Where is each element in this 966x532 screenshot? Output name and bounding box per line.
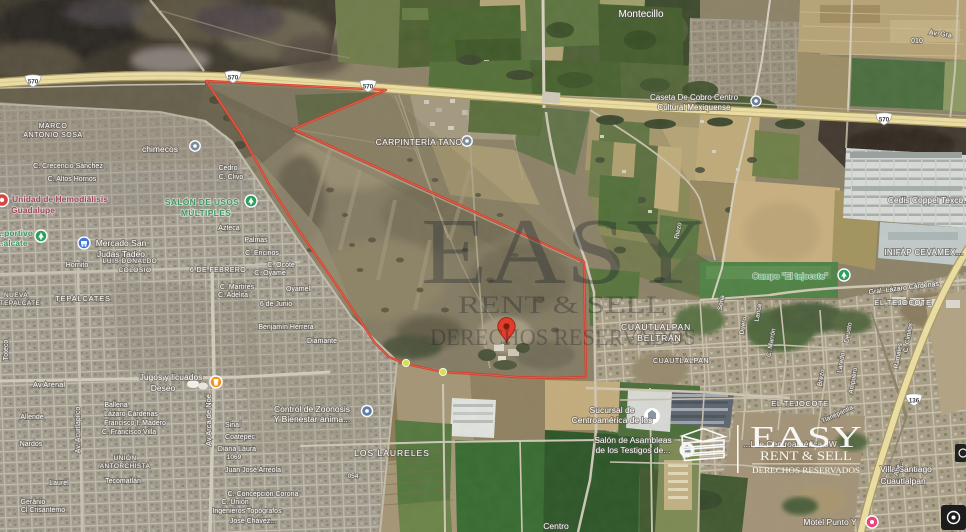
svg-text:Av. Acuitlapilco: Av. Acuitlapilco (75, 407, 82, 454)
svg-text:Centroamérica de los: Centroamérica de los (572, 415, 653, 425)
svg-text:EL TEJOCOTE: EL TEJOCOTE (874, 298, 931, 307)
svg-text:C. Clivo: C. Clivo (219, 174, 244, 181)
svg-text:570: 570 (28, 78, 39, 85)
svg-text:chimecos: chimecos (142, 144, 178, 154)
svg-text:ANTONIO SOSA: ANTONIO SOSA (23, 132, 82, 139)
svg-text:- BELTRÁN: - BELTRÁN (631, 333, 682, 343)
svg-text:Judas Tadeo: Judas Tadeo (97, 249, 145, 259)
svg-text:NUEVA: NUEVA (4, 292, 28, 299)
svg-text:Juan José Arreola: Juan José Arreola (225, 467, 281, 474)
svg-text:C. Unión: C. Unión (221, 499, 248, 506)
svg-text:Montecillo: Montecillo (618, 9, 663, 20)
svg-text:MÚLTIPLES: MÚLTIPLES (181, 207, 231, 218)
svg-text:Guadalupe: Guadalupe (11, 205, 55, 215)
svg-text:Nardos: Nardos (20, 441, 43, 448)
svg-text:Control de Zoonosis: Control de Zoonosis (274, 404, 350, 414)
svg-text:INIFAP CEVAMEX...: INIFAP CEVAMEX... (884, 248, 963, 257)
svg-text:C. Francisco Villa: C. Francisco Villa (102, 429, 156, 436)
svg-text:Caseta De Cobro Centro: Caseta De Cobro Centro (650, 93, 739, 102)
svg-text:C. Ocote: C. Ocote (267, 262, 295, 269)
svg-text:Sinaí: Sinaí (225, 422, 241, 429)
svg-text:Salón de Asambleas: Salón de Asambleas (594, 435, 672, 445)
svg-text:ANTORCHISTA: ANTORCHISTA (100, 463, 151, 470)
svg-text:C. Oyame: C. Oyame (254, 270, 286, 277)
svg-text:Hornito: Hornito (66, 262, 89, 269)
svg-text:MARCO: MARCO (39, 123, 68, 130)
svg-text:EASY: EASY (421, 200, 705, 304)
svg-text:CARPINTERÍA TANO: CARPINTERÍA TANO (376, 137, 463, 147)
svg-text:Toteco: Toteco (3, 340, 10, 361)
svg-text:Francisco I. Madero: Francisco I. Madero (104, 420, 166, 427)
svg-text:Diamante: Diamante (307, 338, 337, 345)
svg-text:CUAUTLALPAN: CUAUTLALPAN (653, 358, 709, 365)
svg-text:136: 136 (909, 397, 920, 404)
svg-text:Oyamel: Oyamel (286, 286, 311, 293)
svg-text:C. Crecencio Sánchez: C. Crecencio Sánchez (33, 163, 103, 170)
svg-text:C. Altos Hornos: C. Altos Hornos (48, 176, 97, 183)
svg-text:EL TEJOCOTE: EL TEJOCOTE (771, 399, 828, 408)
svg-text:Y Bienestar anima...: Y Bienestar anima... (274, 414, 350, 424)
svg-text:C. Adelita: C. Adelita (218, 292, 248, 299)
svg-text:CUAUTLALPAN: CUAUTLALPAN (621, 322, 691, 332)
svg-text:Av Arenal: Av Arenal (33, 380, 65, 389)
svg-text:DERECHOS RESERVADOS: DERECHOS RESERVADOS (752, 466, 860, 475)
svg-text:RENT & SELL: RENT & SELL (458, 292, 666, 319)
svg-text:Cedro: Cedro (218, 165, 237, 172)
svg-text:TEPALCATE: TEPALCATE (0, 300, 41, 307)
svg-text:UNIÓN: UNIÓN (114, 453, 137, 462)
svg-text:COLOSIO: COLOSIO (118, 267, 151, 274)
svg-text:Palmas: Palmas (244, 237, 268, 244)
svg-text:Ingenieros Topógrafos: Ingenieros Topógrafos (212, 508, 282, 515)
svg-text:Av Arca de Noé: Av Arca de Noé (204, 394, 213, 446)
svg-text:Campo "El tejocote": Campo "El tejocote" (752, 271, 828, 281)
svg-text:Gerânio: Gerânio (21, 499, 46, 506)
svg-text:Laurel: Laurel (49, 480, 69, 487)
svg-text:Unidad de Hemodiálisis: Unidad de Hemodiálisis (12, 194, 108, 204)
svg-text:Allende: Allende (20, 414, 43, 421)
svg-text:570: 570 (363, 83, 374, 90)
svg-text:Cedis Coppel Texco...: Cedis Coppel Texco... (888, 195, 966, 205)
svg-text:Deseo: Deseo (151, 383, 176, 393)
svg-text:570: 570 (228, 74, 239, 81)
svg-text:6 de Junio: 6 de Junio (260, 301, 292, 308)
svg-text:Benjamín Herrera: Benjamín Herrera (258, 324, 313, 331)
svg-text:054: 054 (348, 473, 359, 480)
svg-text:Villa Santiago: Villa Santiago (880, 464, 932, 474)
svg-text:570: 570 (879, 116, 890, 123)
svg-text:José Chávez...: José Chávez... (230, 518, 276, 525)
svg-text:Tecomatlán: Tecomatlán (105, 478, 141, 485)
svg-text:Cl Crisantemo: Cl Crisantemo (21, 507, 65, 514)
svg-text:C. Martires: C. Martires (220, 284, 255, 291)
svg-text:Azteca: Azteca (218, 225, 240, 232)
svg-text:Cultural Mexiquense: Cultural Mexiquense (658, 103, 731, 112)
svg-text:Diana Laura: Diana Laura (218, 446, 256, 453)
svg-text:LUIS DONALDO: LUIS DONALDO (103, 258, 157, 265)
svg-text:SALÓN DE USOS: SALÓN DE USOS (165, 196, 239, 207)
svg-text:Coatepec: Coatepec (225, 434, 255, 441)
svg-text:Mercado San: Mercado San (96, 238, 147, 248)
svg-text:TEPALCATES: TEPALCATES (55, 294, 111, 303)
svg-text:Cuautlalpan: Cuautlalpan (880, 476, 926, 486)
svg-text:LOS LAURELES: LOS LAURELES (354, 448, 430, 458)
svg-text:Ballena: Ballena (104, 402, 127, 409)
svg-text:Motel Punto Y: Motel Punto Y (803, 517, 857, 527)
svg-text:...portivo: ...portivo (0, 228, 33, 238)
svg-text:de los Testigos de...: de los Testigos de... (596, 445, 671, 455)
svg-text:C. Encinos: C. Encinos (245, 250, 279, 257)
svg-text:C. Concepción Corona: C. Concepción Corona (228, 491, 299, 498)
svg-text:6 DE FEBRERO: 6 DE FEBRERO (190, 267, 246, 274)
svg-text:Centro: Centro (543, 521, 569, 531)
svg-text:010: 010 (911, 38, 923, 45)
svg-text:Lázaro Cárdenas: Lázaro Cárdenas (104, 411, 158, 418)
svg-text:...alcate: ...alcate (0, 238, 28, 248)
svg-text:Sucursal de: Sucursal de (590, 405, 635, 415)
svg-text:RENT & SELL: RENT & SELL (760, 448, 852, 463)
svg-text:1069: 1069 (227, 454, 242, 461)
svg-text:Jugos y licuados: Jugos y licuados (140, 372, 203, 382)
